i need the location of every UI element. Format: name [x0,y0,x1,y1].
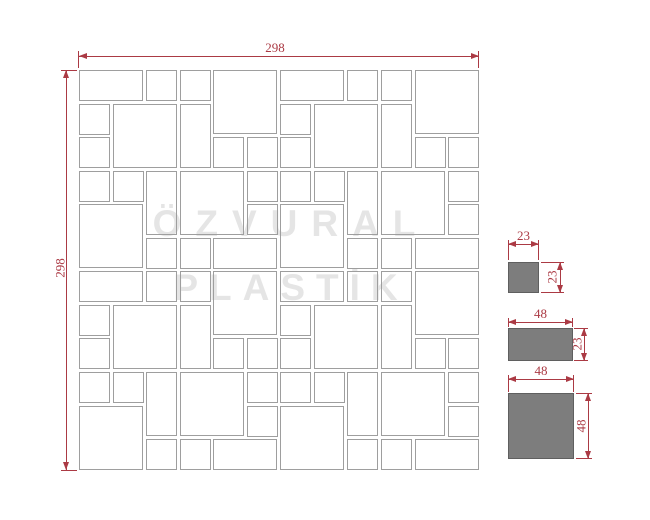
pattern-tile [280,305,311,336]
pattern-tile [79,305,110,336]
pattern-tile [280,137,311,168]
pattern-tile [280,338,311,369]
pattern-tile [415,271,479,335]
pattern-tile [113,171,144,202]
pattern-tile [314,305,378,369]
pattern-tile [280,372,311,403]
pattern-tile [448,137,479,168]
tile-swatch-23x23 [508,262,539,293]
pattern-tile [415,238,479,269]
sample-48x23-width-label: 48 [508,307,573,320]
dim-line [508,379,574,380]
pattern-tile [79,271,143,302]
pattern-tile [146,271,177,302]
pattern-tile [280,271,344,302]
pattern-tile [381,439,412,470]
pattern-tile [146,439,177,470]
mosaic-pattern [79,70,479,470]
dim-line [508,322,573,323]
pattern-tile [415,439,479,470]
pattern-tile [415,137,446,168]
pattern-tile [79,104,110,135]
pattern-tile [448,372,479,403]
pattern-tile [213,137,244,168]
tile-swatch-48x48 [508,393,574,459]
pattern-tile [347,439,378,470]
sample-23x23-height-label: 23 [546,271,559,284]
pattern-tile [314,171,345,202]
pattern-tile [247,372,278,403]
pattern-tile [347,171,378,235]
pattern-tile [347,271,378,302]
pattern-tile [213,439,277,470]
pattern-tile [146,171,177,235]
pattern-tile [448,204,479,235]
pattern-tile [280,104,311,135]
pattern-tile [79,171,110,202]
pattern-tile [280,70,344,101]
pattern-tile [381,305,412,369]
pattern-tile [448,406,479,437]
pattern-tile [347,70,378,101]
pattern-width-dim-label: 298 [75,41,475,54]
pattern-tile [180,171,244,235]
pattern-tile [347,372,378,436]
pattern-tile [247,204,278,235]
pattern-tile [213,271,277,335]
pattern-height-dim-label: 298 [54,258,67,278]
dim-arrow-up [585,393,591,401]
pattern-tile [381,171,445,235]
dim-line [79,56,479,57]
pattern-tile [113,372,144,403]
pattern-tile [146,372,177,436]
pattern-tile [381,372,445,436]
pattern-tile [314,372,345,403]
drawing-canvas: ÖZVURAL PLASTİK 298 298 23 23 [0,0,650,520]
pattern-tile [247,406,278,437]
pattern-tile [247,137,278,168]
pattern-tile [247,338,278,369]
pattern-tile [381,238,412,269]
pattern-tile [79,137,110,168]
pattern-tile [146,238,177,269]
pattern-tile [213,70,277,134]
pattern-tile [113,305,177,369]
sample-48x23-height-label: 23 [571,338,584,351]
pattern-tile [280,171,311,202]
tile-swatch-48x23 [508,328,573,361]
sample-48x48-width-label: 48 [508,364,574,377]
pattern-tile [79,372,110,403]
pattern-tile [146,70,177,101]
pattern-tile [280,406,344,470]
pattern-tile [381,70,412,101]
dim-arrow-down [581,353,587,361]
dim-arrow-up [63,70,69,78]
pattern-tile [415,338,446,369]
pattern-tile [180,238,211,269]
pattern-tile [213,338,244,369]
pattern-tile [79,406,143,470]
pattern-tile [314,104,378,168]
dim-arrow-up [557,262,563,270]
pattern-tile [448,338,479,369]
pattern-tile [180,271,211,302]
pattern-tile [180,70,211,101]
pattern-tile [381,104,412,168]
pattern-tile [79,70,143,101]
pattern-tile [180,104,211,168]
pattern-tile [247,171,278,202]
sample-48x48-height-label: 48 [575,420,588,433]
pattern-tile [180,305,211,369]
sample-23x23-width-label: 23 [508,229,539,242]
pattern-tile [347,238,378,269]
pattern-tile [448,171,479,202]
pattern-tile [180,372,244,436]
pattern-tile [213,238,277,269]
dim-arrow-down [585,451,591,459]
dim-arrow-down [557,285,563,293]
dim-arrow-up [581,328,587,336]
pattern-tile [113,104,177,168]
pattern-tile [79,204,143,268]
dim-arrow-down [63,462,69,470]
pattern-tile [79,338,110,369]
pattern-tile [280,204,344,268]
pattern-tile [180,439,211,470]
pattern-tile [415,70,479,134]
dim-extension [61,470,77,471]
pattern-tile [381,271,412,302]
